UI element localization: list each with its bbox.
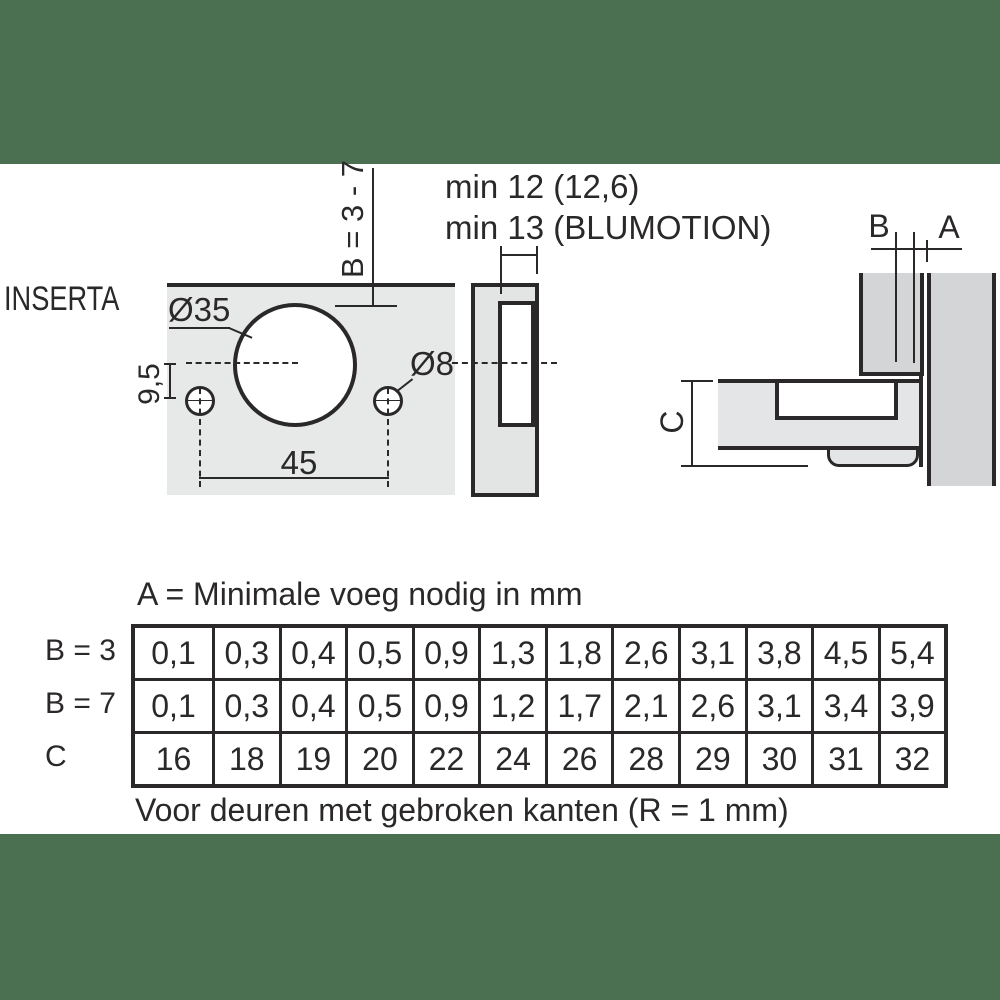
c-dim-tick-bottom [681, 465, 808, 467]
cup-hole-section [498, 301, 535, 427]
table-cell: 1,7 [546, 680, 613, 733]
table-cell: 0,3 [214, 680, 281, 733]
table-cell: 0,9 [413, 626, 480, 680]
table-cell: 30 [746, 733, 813, 787]
table-cell: 2,6 [613, 626, 680, 680]
table-cell: 0,1 [133, 680, 214, 733]
table-cell: 3,9 [879, 680, 946, 733]
row-label-b3: B = 3 [45, 636, 116, 666]
row-label-c: C [45, 742, 67, 772]
table-cell: 18 [214, 733, 281, 787]
table-cell: 0,9 [413, 680, 480, 733]
table-cell: 28 [613, 733, 680, 787]
ba-dim-line [871, 248, 962, 250]
cup-diameter-label: Ø35 [168, 293, 230, 326]
inserta-label: INSERTA [4, 282, 119, 316]
cabinet-panel [927, 273, 996, 486]
c-dim-tick-top [681, 380, 713, 382]
voeg-table: 0,10,30,40,50,91,31,82,63,13,84,55,40,10… [131, 624, 948, 788]
depth-dim-right-tick [536, 246, 538, 274]
row-label-b7: B = 7 [45, 689, 116, 719]
b-gap-label: B [864, 210, 894, 242]
table-cell: 20 [347, 733, 414, 787]
table-cell: 3,1 [680, 626, 747, 680]
table-cell: 4,5 [813, 626, 880, 680]
ba-dim-line-1 [895, 232, 897, 362]
table-cell: 16 [133, 733, 214, 787]
table-row: 161819202224262829303132 [133, 733, 946, 787]
table-cell: 5,4 [879, 626, 946, 680]
min-depth-note-2: min 13 (BLUMOTION) [445, 211, 771, 244]
left-hole-centerline [199, 388, 201, 487]
section-centerline [452, 362, 557, 364]
a-gap-label: A [934, 211, 964, 243]
depth-dim-line [500, 254, 538, 256]
table-cell: 0,1 [133, 626, 214, 680]
table-cell: 22 [413, 733, 480, 787]
table-cell: 0,3 [214, 626, 281, 680]
right-hole-centerline [387, 388, 389, 487]
cup-centerline [186, 362, 298, 364]
table-cell: 3,8 [746, 626, 813, 680]
table-cell: 29 [680, 733, 747, 787]
table-row: 0,10,30,40,50,91,21,72,12,63,13,43,9 [133, 680, 946, 733]
table-cell: 24 [480, 733, 547, 787]
min-depth-note-1: min 12 (12,6) [445, 170, 639, 203]
c-dim-line [691, 381, 693, 466]
table-cell: 1,8 [546, 626, 613, 680]
cup-hole-circle [233, 303, 357, 427]
table-cell: 0,5 [347, 680, 414, 733]
hinge-cup-tab [827, 450, 919, 467]
c-dim-label: C [656, 392, 686, 452]
table-cell: 3,4 [813, 680, 880, 733]
offset-dim-label: 9,5 [135, 354, 167, 414]
b-range-leader-line [372, 168, 374, 307]
hole-diameter-label: Ø8 [410, 347, 454, 380]
b-range-tick [335, 305, 397, 307]
table-cell: 26 [546, 733, 613, 787]
table-cell: 0,4 [280, 626, 347, 680]
table-cell: 1,2 [480, 680, 547, 733]
table-cell: 1,3 [480, 626, 547, 680]
table-caption: Voor deuren met gebroken kanten (R = 1 m… [135, 794, 789, 826]
ba-dim-line-2 [913, 232, 915, 363]
top-green-band [0, 0, 1000, 164]
b-range-label: B = 3 - 7 [337, 159, 371, 279]
table-title: A = Minimale voeg nodig in mm [137, 578, 583, 610]
cup-leader-line [169, 327, 230, 329]
table-cell: 19 [280, 733, 347, 787]
table-cell: 0,5 [347, 626, 414, 680]
table-cell: 3,1 [746, 680, 813, 733]
table-cell: 0,4 [280, 680, 347, 733]
voeg-table-body: 0,10,30,40,50,91,31,82,63,13,84,55,40,10… [133, 626, 946, 786]
table-cell: 32 [879, 733, 946, 787]
door-front-edge-line [919, 372, 923, 467]
catalog-page: INSERTA B = 3 - 7 Ø35 9,5 45 [0, 0, 1000, 1000]
cup-recess [775, 383, 898, 420]
offset-dim-line [169, 364, 171, 398]
table-cell: 2,6 [680, 680, 747, 733]
ba-dim-tick [926, 240, 928, 262]
spacing-dim-label: 45 [269, 446, 329, 479]
table-cell: 2,1 [613, 680, 680, 733]
table-cell: 31 [813, 733, 880, 787]
bottom-green-band [0, 834, 1000, 1000]
table-row: 0,10,30,40,50,91,31,82,63,13,84,55,4 [133, 626, 946, 680]
